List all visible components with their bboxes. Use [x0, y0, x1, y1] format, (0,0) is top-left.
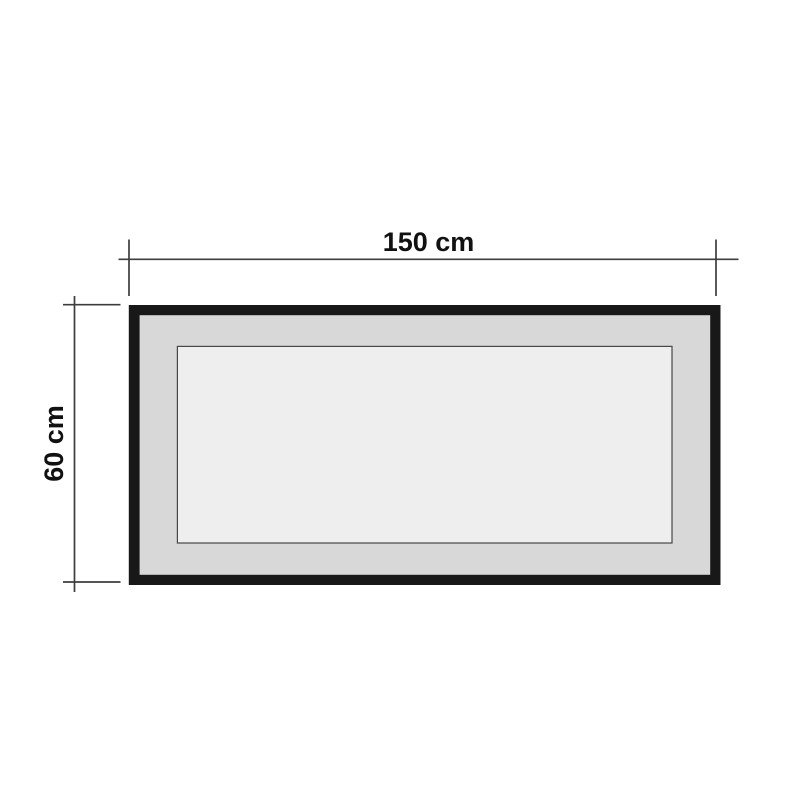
svg-text:150 cm: 150 cm	[383, 227, 475, 257]
svg-text:60 cm: 60 cm	[39, 405, 69, 482]
